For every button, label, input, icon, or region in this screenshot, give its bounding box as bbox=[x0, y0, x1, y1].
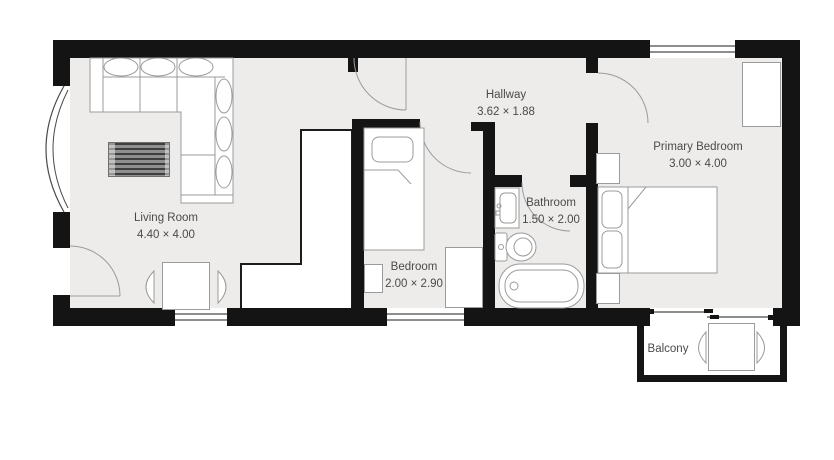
toilet bbox=[495, 233, 536, 261]
bedroom-bed bbox=[364, 128, 424, 250]
room-dims: 3.62 × 1.88 bbox=[477, 104, 535, 121]
room-name: Balcony bbox=[648, 341, 689, 358]
dining-chair-left bbox=[146, 271, 154, 303]
bathtub bbox=[499, 264, 584, 308]
sliding-door-symbol bbox=[648, 309, 774, 320]
label-bedroom: Bedroom 2.00 × 2.90 bbox=[385, 259, 443, 292]
bay-window bbox=[46, 86, 68, 212]
balcony-chair-right bbox=[757, 332, 765, 363]
detail-layer bbox=[0, 0, 834, 460]
hallway-door bbox=[354, 58, 406, 110]
room-name: Bathroom bbox=[522, 195, 580, 212]
bathroom-sink bbox=[495, 188, 519, 228]
label-primary-bedroom: Primary Bedroom 3.00 × 4.00 bbox=[653, 139, 742, 172]
dining-chair-right bbox=[218, 271, 226, 303]
room-dims: 4.40 × 4.00 bbox=[134, 227, 198, 244]
room-dims: 1.50 × 2.00 bbox=[522, 212, 580, 229]
label-balcony: Balcony bbox=[648, 341, 689, 358]
label-hallway: Hallway 3.62 × 1.88 bbox=[477, 87, 535, 120]
floor-plan: Living Room 4.40 × 4.00 Hallway 3.62 × 1… bbox=[0, 0, 834, 460]
primary-bed bbox=[598, 187, 717, 273]
room-name: Hallway bbox=[477, 87, 535, 104]
entry-door bbox=[70, 246, 120, 296]
room-name: Bedroom bbox=[385, 259, 443, 276]
corner-sofa bbox=[90, 58, 233, 203]
primary-bedroom-door bbox=[598, 73, 648, 123]
window-glazing bbox=[175, 46, 735, 320]
room-dims: 2.00 × 2.90 bbox=[385, 276, 443, 293]
balcony-chair-left bbox=[699, 332, 707, 363]
room-name: Living Room bbox=[134, 210, 198, 227]
label-living-room: Living Room 4.40 × 4.00 bbox=[134, 210, 198, 243]
label-bathroom: Bathroom 1.50 × 2.00 bbox=[522, 195, 580, 228]
room-dims: 3.00 × 4.00 bbox=[653, 156, 742, 173]
room-name: Primary Bedroom bbox=[653, 139, 742, 156]
bedroom-door bbox=[420, 122, 471, 173]
